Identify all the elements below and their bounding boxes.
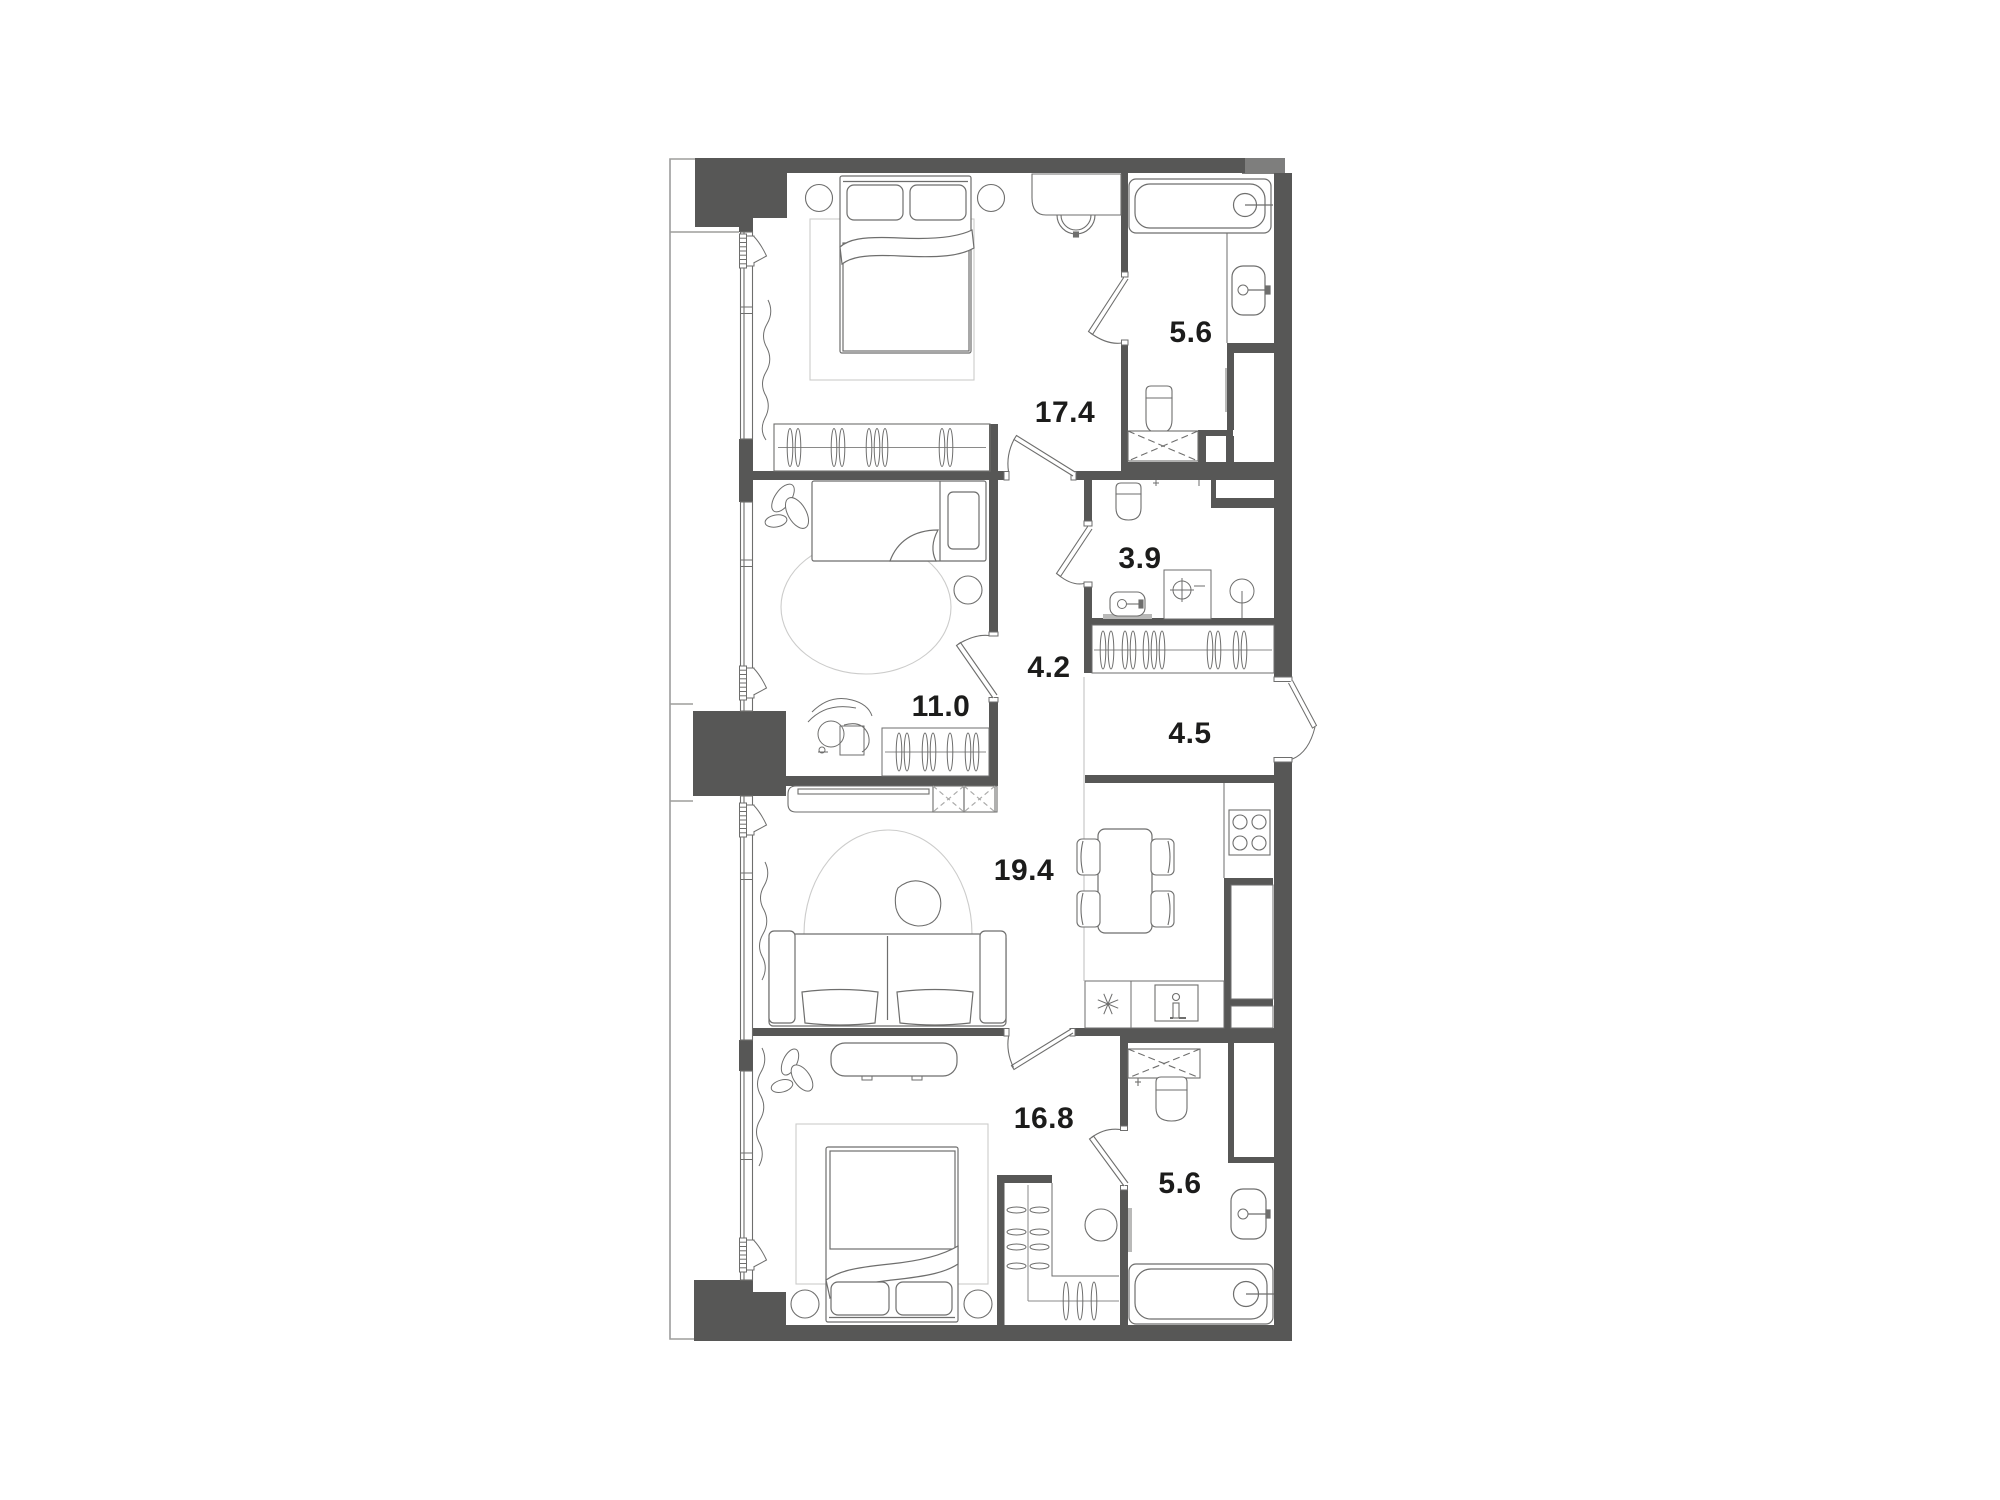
svg-text:5.6: 5.6 (1158, 1167, 1201, 1200)
svg-text:4.5: 4.5 (1168, 717, 1211, 750)
svg-text:19.4: 19.4 (994, 854, 1054, 887)
svg-text:11.0: 11.0 (912, 690, 971, 723)
svg-text:16.8: 16.8 (1014, 1102, 1074, 1135)
svg-text:3.9: 3.9 (1118, 542, 1161, 575)
svg-text:17.4: 17.4 (1035, 396, 1095, 429)
svg-text:5.6: 5.6 (1169, 316, 1212, 349)
svg-text:4.2: 4.2 (1027, 651, 1070, 684)
